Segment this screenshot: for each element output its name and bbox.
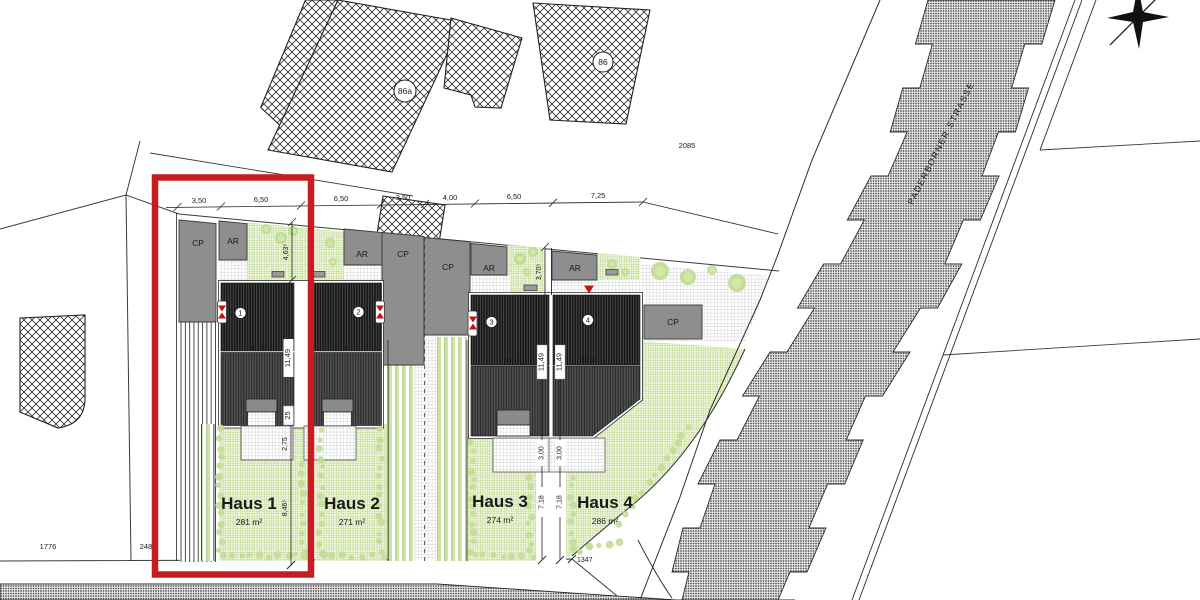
svg-text:3,00: 3,00 xyxy=(539,446,546,460)
svg-text:Haus 1: Haus 1 xyxy=(221,494,277,513)
svg-text:7,25: 7,25 xyxy=(591,191,606,200)
svg-text:11,49: 11,49 xyxy=(537,353,546,371)
svg-text:801 85: 801 85 xyxy=(333,346,349,352)
svg-text:86a: 86a xyxy=(398,86,412,96)
svg-text:Haus 4: Haus 4 xyxy=(577,493,633,512)
svg-text:8,46⁵: 8,46⁵ xyxy=(282,500,289,517)
svg-text:2: 2 xyxy=(356,308,360,317)
svg-text:3: 3 xyxy=(489,318,493,327)
svg-text:4: 4 xyxy=(586,316,590,325)
svg-text:CP: CP xyxy=(667,317,679,327)
svg-text:1776: 1776 xyxy=(40,542,57,551)
svg-text:CP: CP xyxy=(397,249,409,259)
svg-text:Haus 2: Haus 2 xyxy=(324,494,380,513)
svg-text:271 m²: 271 m² xyxy=(339,517,366,527)
svg-text:4,00: 4,00 xyxy=(443,193,458,202)
svg-text:2,75: 2,75 xyxy=(282,437,289,451)
svg-text:2085: 2085 xyxy=(679,141,696,150)
svg-text:6,50: 6,50 xyxy=(334,194,349,203)
svg-text:4,63⁵: 4,63⁵ xyxy=(283,244,290,261)
svg-text:274 m²: 274 m² xyxy=(487,515,514,525)
svg-text:AR: AR xyxy=(569,263,581,273)
svg-text:Haus 3: Haus 3 xyxy=(472,492,528,511)
svg-text:801 85: 801 85 xyxy=(250,346,266,352)
svg-text:86: 86 xyxy=(598,57,608,67)
svg-text:11,49: 11,49 xyxy=(555,353,564,371)
svg-text:1347: 1347 xyxy=(577,557,593,564)
svg-text:6,50: 6,50 xyxy=(507,192,522,201)
svg-text:3,70⁵: 3,70⁵ xyxy=(536,264,543,281)
svg-text:281 m²: 281 m² xyxy=(236,517,263,527)
svg-text:286 m²: 286 m² xyxy=(592,516,619,526)
svg-text:801 85: 801 85 xyxy=(580,358,596,364)
svg-text:AR: AR xyxy=(356,249,368,259)
svg-text:7,18: 7,18 xyxy=(539,495,546,509)
svg-text:3,00: 3,00 xyxy=(557,446,564,460)
svg-text:6,50: 6,50 xyxy=(254,195,269,204)
svg-text:AR: AR xyxy=(483,263,495,273)
svg-text:AR: AR xyxy=(227,236,239,246)
svg-text:3,50: 3,50 xyxy=(396,193,411,202)
svg-text:CP: CP xyxy=(442,262,454,272)
svg-text:3,50: 3,50 xyxy=(192,196,207,205)
svg-text:1: 1 xyxy=(238,309,242,318)
svg-text:801 85: 801 85 xyxy=(504,358,520,364)
svg-text:CP: CP xyxy=(192,238,204,248)
svg-text:25: 25 xyxy=(283,411,292,419)
svg-text:7,18: 7,18 xyxy=(557,495,564,509)
svg-text:11,49: 11,49 xyxy=(283,349,292,367)
